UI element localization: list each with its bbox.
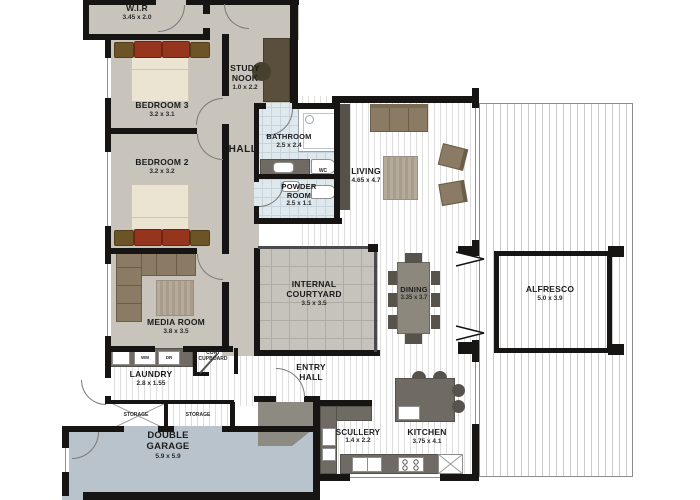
wall-segment [254, 396, 276, 402]
bed3-cushion [190, 42, 210, 58]
room-label-study-nook: STUDY NOOK1.0 x 2.2 [223, 64, 267, 91]
scullery-appliance [322, 428, 336, 446]
dryer-label: DR [166, 355, 173, 360]
wall-segment [62, 426, 69, 450]
wall-segment [62, 472, 69, 496]
bed3-pillow [162, 41, 190, 58]
wall-segment [313, 474, 350, 481]
room-label-hall: HALL [229, 144, 258, 156]
bed3-pillow [134, 41, 162, 58]
bar-stool [452, 384, 465, 397]
glass-wall [374, 246, 377, 352]
wall-segment [105, 346, 155, 352]
wall-segment [164, 402, 168, 428]
post [458, 342, 472, 354]
armchair [438, 180, 467, 206]
storage-label: STORAGE [186, 412, 211, 418]
bifold-door-icon [454, 250, 490, 268]
glass-wall [258, 246, 376, 249]
dining-chair [388, 271, 397, 285]
media-rug [156, 280, 194, 316]
dining-chair [405, 253, 422, 263]
post [608, 246, 624, 257]
window [104, 152, 111, 226]
wall-segment [334, 103, 340, 224]
room-label-scullery: SCULLERY1.4 x 2.2 [336, 428, 380, 445]
window [350, 474, 440, 481]
wall-segment [230, 402, 235, 428]
post [608, 344, 624, 355]
dining-chair [431, 271, 440, 285]
bed2 [131, 184, 189, 230]
wall-segment [203, 28, 210, 40]
room-label-bedroom3: BEDROOM 33.2 x 3.1 [135, 101, 188, 118]
bar-stool [433, 371, 447, 379]
wall-segment [222, 426, 315, 432]
window [104, 58, 111, 98]
dining-chair [405, 334, 422, 344]
dining-chair [388, 315, 397, 329]
bed3 [131, 56, 189, 102]
wall-segment [316, 400, 372, 406]
wall-segment [105, 346, 111, 378]
room-label-kitchen: KITCHEN3.75 x 4.1 [407, 428, 446, 445]
living-sofa [370, 104, 428, 132]
bed2-pillow [162, 229, 190, 246]
wall-segment [105, 400, 234, 404]
bathroom-basin [273, 162, 294, 173]
wall-segment [83, 492, 315, 500]
wall-segment [292, 103, 340, 109]
washing-machine-label: WM [141, 355, 149, 360]
dining-chair [388, 293, 397, 307]
room-label-bathroom: BATHROOM2.5 x 2.4 [266, 133, 311, 149]
dining-chair [431, 293, 440, 307]
wall-segment [332, 96, 479, 103]
room-label-laundry: LAUNDRY2.8 x 1.55 [130, 370, 173, 387]
bed3-cushion [114, 42, 134, 58]
bifold-door-icon [454, 324, 490, 342]
room-label-entry-hall: ENTRY HALL [291, 363, 331, 383]
wall-segment [234, 348, 238, 374]
kitchen-sink [352, 457, 382, 472]
floor-plan: W.I.R3.45 x 2.0 BEDROOM 33.2 x 3.1 STUDY… [0, 0, 700, 500]
room-label-alfresco: ALFRESCO5.0 x 3.9 [526, 285, 574, 302]
wall-segment [472, 340, 479, 364]
wall-segment [111, 248, 197, 254]
wall-segment [105, 98, 111, 132]
wall-segment [203, 0, 210, 14]
room-label-dining: DINING3.35 x 3.7 [400, 286, 427, 302]
post [368, 244, 378, 252]
laundry-sink [112, 351, 130, 365]
room-label-living: LIVING4.65 x 4.7 [351, 167, 381, 184]
wall-segment [472, 88, 479, 110]
room-label-powder-room: POWDER ROOM2.5 x 1.1 [276, 183, 322, 208]
wall-segment [254, 350, 380, 356]
cooktop-icon [398, 457, 424, 472]
wall-segment [254, 248, 260, 356]
wall-segment [472, 424, 479, 481]
dining-chair [431, 315, 440, 329]
island-sink [398, 406, 420, 420]
wall-segment [254, 103, 259, 182]
window [62, 448, 69, 472]
bed2-cushion [114, 230, 134, 246]
wall-segment [111, 128, 197, 134]
wc-label: WC [319, 168, 327, 174]
wall-segment [304, 396, 316, 402]
wall-segment [290, 0, 298, 103]
pantry-icon [438, 454, 463, 474]
bar-stool [412, 371, 426, 379]
wall-segment [105, 132, 111, 154]
bed2-cushion [190, 230, 210, 246]
bar-stool [452, 400, 465, 413]
window [104, 264, 111, 336]
living-rug [383, 156, 418, 200]
wall-segment [256, 174, 338, 179]
door-arc [81, 380, 106, 405]
scullery-appliance [322, 448, 336, 461]
wall-segment [222, 282, 229, 352]
room-label-wir: W.I.R3.45 x 2.0 [123, 4, 152, 21]
media-sofa-side [116, 252, 142, 322]
window [472, 362, 479, 424]
wall-segment [83, 34, 205, 40]
wall-segment [254, 218, 342, 224]
room-label-internal-courtyard: INTERNAL COURTYARD3.5 x 3.5 [279, 280, 349, 307]
wall-segment [313, 396, 320, 500]
window [472, 108, 479, 240]
coat-cupboard-label: COAT CUPBOARD [197, 350, 229, 362]
wall-segment [105, 34, 111, 60]
room-label-media-room: MEDIA ROOM3.8 x 3.5 [147, 318, 205, 335]
room-label-double-garage: DOUBLE GARAGE5.9 x 5.9 [137, 431, 199, 460]
bed2-pillow [134, 229, 162, 246]
storage-label: STORAGE [124, 412, 149, 418]
room-label-bedroom2: BEDROOM 23.2 x 3.2 [135, 158, 188, 175]
